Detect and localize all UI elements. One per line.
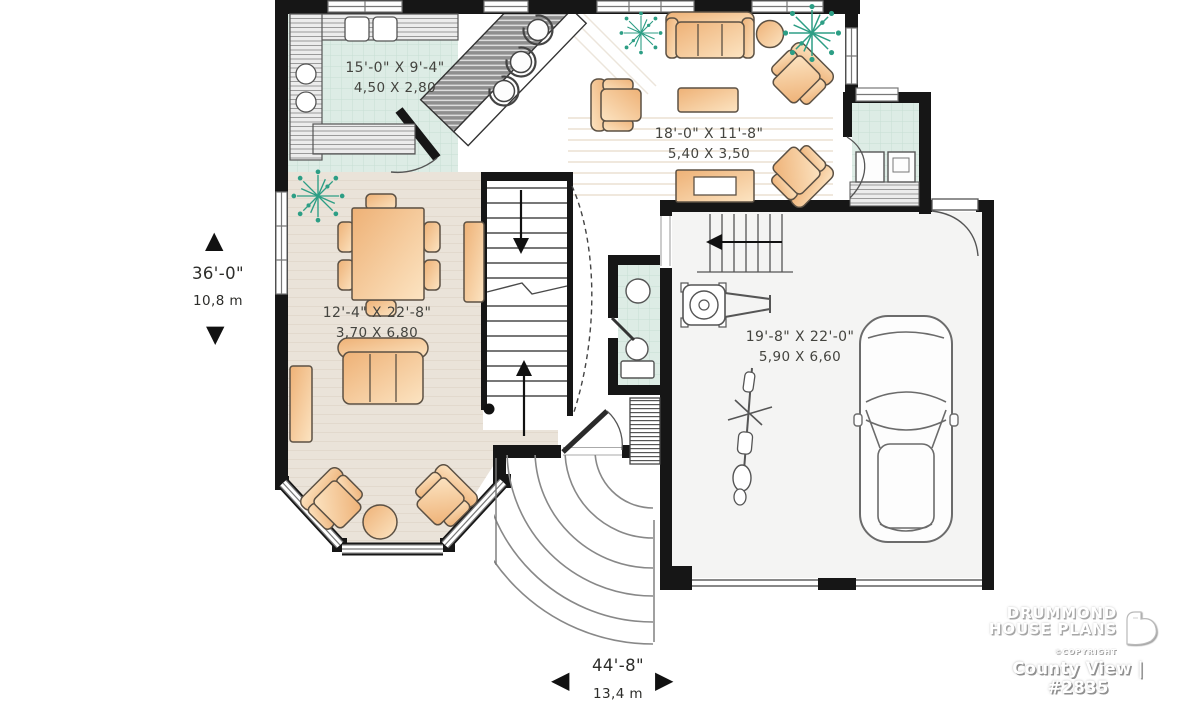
kitchen-sink bbox=[373, 17, 397, 41]
armchair bbox=[764, 40, 836, 112]
plant-icon bbox=[292, 170, 344, 222]
round-side-table bbox=[757, 21, 784, 48]
garage-dimensions-label: 19'-8" X 22'-0" 5,90 X 6,60 bbox=[720, 327, 880, 367]
overall-width-imperial: 44'-8" bbox=[570, 656, 666, 675]
cooktop-burner bbox=[296, 92, 316, 112]
kitchen-sink bbox=[345, 17, 369, 41]
bathroom-sink bbox=[626, 279, 650, 303]
staircase bbox=[484, 186, 592, 436]
plan-title: County View | #2835 bbox=[997, 659, 1159, 697]
family-room-dimensions-label: 12'-4" X 22'-8" 3,70 X 6,80 bbox=[297, 303, 457, 343]
plant-icon bbox=[784, 5, 841, 62]
toilet bbox=[626, 338, 648, 360]
brand-line2: HOUSE PLANS bbox=[985, 622, 1117, 638]
dryer bbox=[888, 152, 915, 182]
washer bbox=[856, 152, 884, 182]
entry-closet bbox=[630, 398, 660, 464]
front-entry bbox=[563, 411, 622, 455]
kitchen-dimensions-label: 15'-0" X 9'-4" 4,50 X 2,80 bbox=[325, 58, 465, 98]
living-room-dimensions-label: 18'-0" X 11'-8" 5,40 X 3,50 bbox=[629, 124, 789, 164]
plant-icon bbox=[620, 12, 662, 54]
front-door-swing bbox=[607, 411, 622, 450]
dining-set bbox=[338, 194, 440, 316]
round-side-table bbox=[363, 505, 397, 539]
overall-depth-imperial: 36'-0" bbox=[168, 264, 268, 283]
family-room-metric: 3,70 X 6,80 bbox=[297, 323, 457, 343]
living-room-metric: 5,40 X 3,50 bbox=[629, 144, 789, 164]
tv-bench bbox=[676, 170, 754, 202]
kitchen-imperial: 15'-0" X 9'-4" bbox=[325, 58, 465, 78]
width-arrow-left-icon: ◀ bbox=[551, 668, 569, 692]
width-arrow-right-icon: ▶ bbox=[655, 668, 673, 692]
floor-plan-page: 15'-0" X 9'-4" 4,50 X 2,80 18'-0" X 11'-… bbox=[0, 0, 1200, 711]
family-room-imperial: 12'-4" X 22'-8" bbox=[297, 303, 457, 323]
kitchen-metric: 4,50 X 2,80 bbox=[325, 78, 465, 98]
brand-copyright: ©COPYRIGHT bbox=[1020, 648, 1117, 656]
steps-edge bbox=[496, 458, 654, 642]
depth-arrow-down-icon: ▼ bbox=[206, 322, 224, 346]
depth-arrow-up-icon: ▲ bbox=[205, 228, 223, 252]
front-curved-steps bbox=[459, 450, 653, 644]
stairs-down-arrow-icon bbox=[513, 238, 529, 254]
sofa bbox=[666, 12, 754, 58]
loveseat bbox=[338, 338, 428, 404]
dining-table bbox=[352, 208, 424, 300]
coffee-table bbox=[678, 88, 738, 112]
stairs-up-arrow-icon bbox=[516, 360, 532, 376]
garage-metric: 5,90 X 6,60 bbox=[720, 347, 880, 367]
sideboard bbox=[464, 222, 484, 302]
toilet-tank bbox=[621, 361, 654, 378]
garage-imperial: 19'-8" X 22'-0" bbox=[720, 327, 880, 347]
front-door-leaf bbox=[563, 411, 607, 452]
console-cabinet bbox=[290, 366, 312, 442]
brand-logo-text: DRUMMOND HOUSE PLANS bbox=[985, 606, 1117, 637]
cooktop-burner bbox=[296, 64, 316, 84]
living-room-imperial: 18'-0" X 11'-8" bbox=[629, 124, 789, 144]
overall-width-metric: 13,4 m bbox=[570, 686, 666, 702]
drummond-logo-icon bbox=[1120, 608, 1160, 648]
overall-depth-metric: 10,8 m bbox=[168, 293, 268, 309]
